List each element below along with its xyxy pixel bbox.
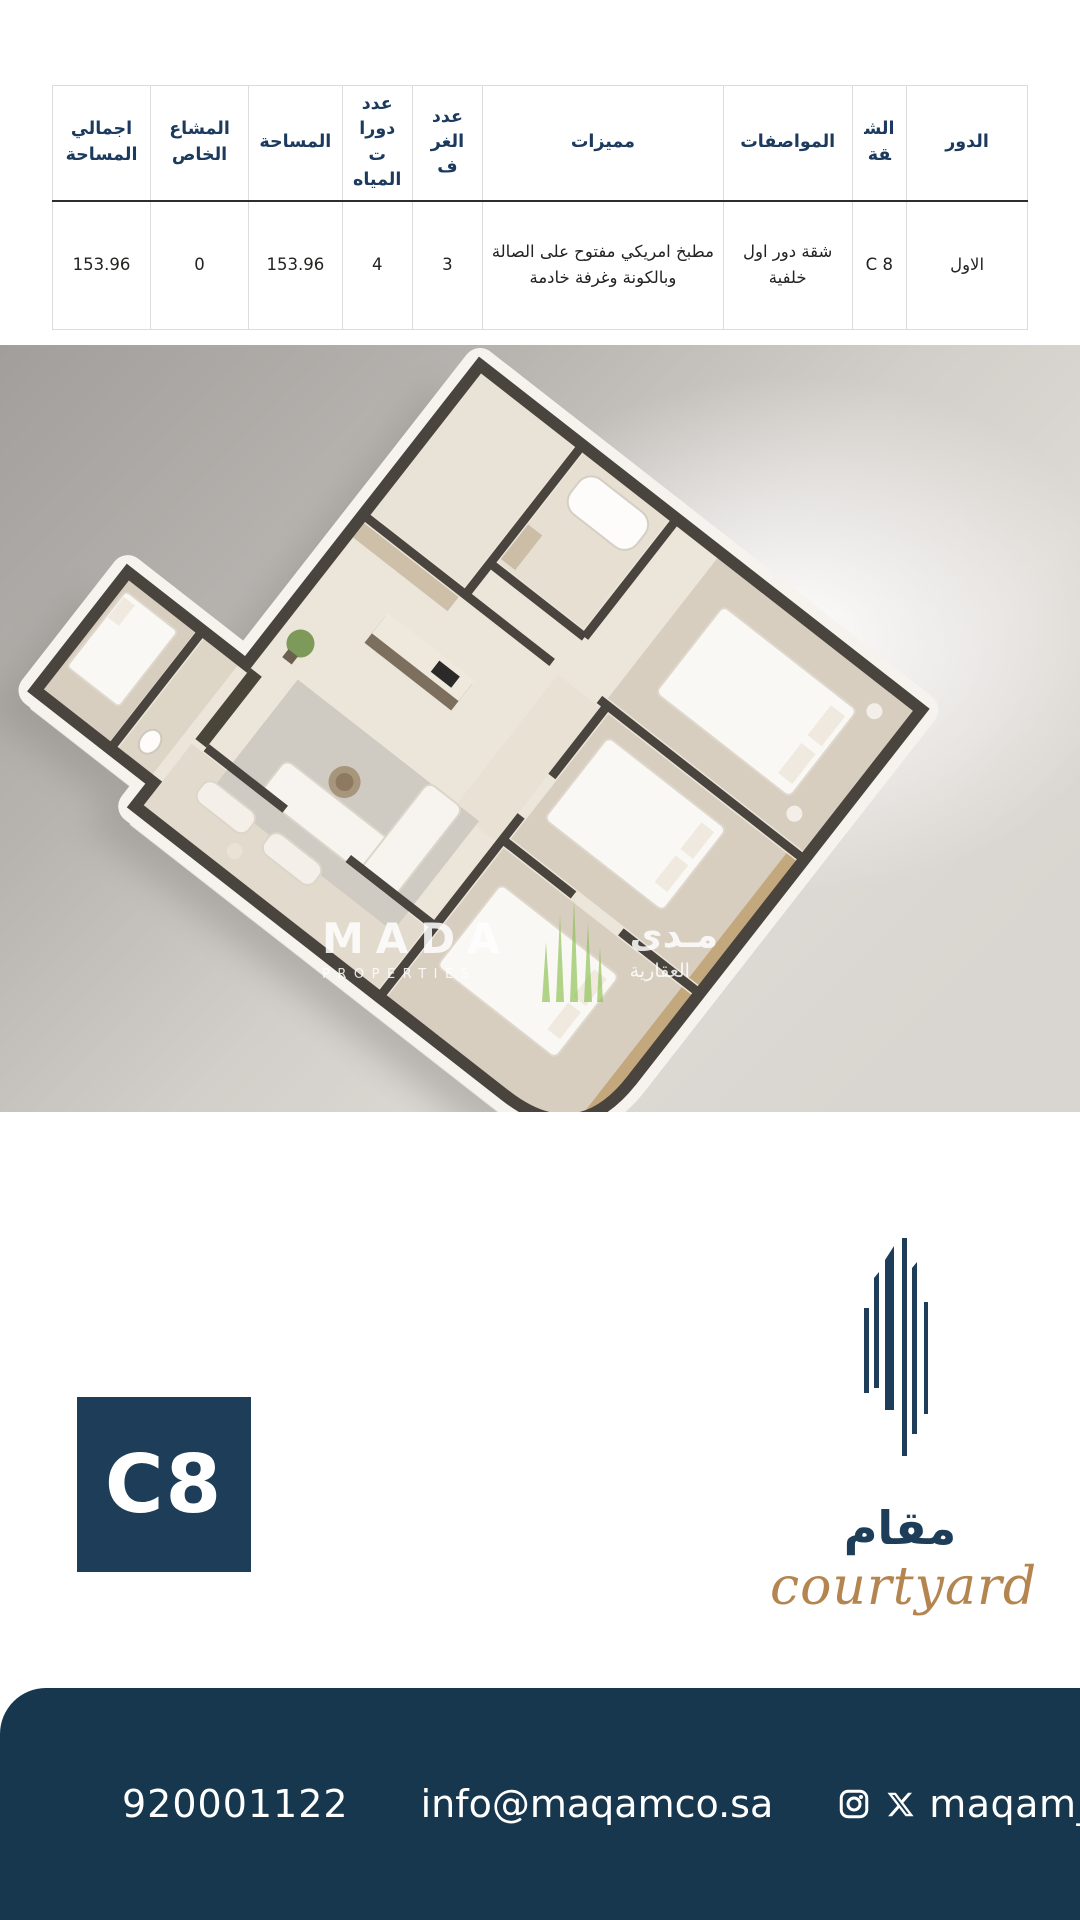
cell-bathrooms: 4 bbox=[342, 201, 412, 330]
col-floor: الدور bbox=[907, 86, 1028, 201]
footer-email[interactable]: info@maqamco.sa bbox=[421, 1782, 774, 1826]
col-apartment: الشقة bbox=[852, 86, 907, 201]
cell-private-common: 0 bbox=[151, 201, 249, 330]
mada-arabic-text: مـدى bbox=[630, 918, 718, 954]
footer-contact-row: 920001122 info@maqamco.sa maqam_co bbox=[0, 1782, 1080, 1826]
maqam-logo-icon bbox=[864, 1238, 936, 1483]
footer-social-icons bbox=[839, 1789, 915, 1819]
cell-features: مطبخ امريكي مفتوح على الصالة وبالكونة وغ… bbox=[483, 201, 724, 330]
floorplan-render: MADA PROPERTIES مـدى العقارية bbox=[0, 345, 1080, 1112]
cell-floor: الاول bbox=[907, 201, 1028, 330]
instagram-icon[interactable] bbox=[839, 1789, 869, 1819]
mada-wordmark: MADA PROPERTIES bbox=[322, 918, 512, 981]
brand-tagline: courtyard bbox=[770, 1561, 1030, 1613]
col-rooms: عدد الغرف bbox=[412, 86, 482, 201]
mada-arabic-wordmark: مـدى العقارية bbox=[630, 918, 718, 981]
footer: 920001122 info@maqamco.sa maqam_co bbox=[0, 1688, 1080, 1920]
mada-arabic-subtext: العقارية bbox=[630, 962, 718, 981]
unit-spec-table: الدور الشقة المواصفات مميزات عدد الغرف ع… bbox=[52, 85, 1028, 330]
cell-rooms: 3 bbox=[412, 201, 482, 330]
footer-social-handle[interactable]: maqam_co bbox=[929, 1782, 1080, 1826]
col-features: مميزات bbox=[483, 86, 724, 201]
col-specs: المواصفات bbox=[723, 86, 852, 201]
cell-apartment: C 8 bbox=[852, 201, 907, 330]
unit-badge: C8 bbox=[77, 1397, 251, 1572]
col-bathrooms: عدد دورات المياه bbox=[342, 86, 412, 201]
mada-brand-text: MADA bbox=[322, 918, 512, 960]
unit-badge-label: C8 bbox=[105, 1438, 223, 1531]
x-twitter-icon[interactable] bbox=[886, 1790, 915, 1819]
mada-brand-subtext: PROPERTIES bbox=[322, 968, 512, 981]
cell-total-area: 153.96 bbox=[53, 201, 151, 330]
table-row: الاول C 8 شقة دور اول خلفية مطبخ امريكي … bbox=[53, 201, 1028, 330]
col-total-area: اجمالي المساحة bbox=[53, 86, 151, 201]
brochure-page: الدور الشقة المواصفات مميزات عدد الغرف ع… bbox=[0, 0, 1080, 1920]
brand-name-arabic: مقام bbox=[770, 1505, 1030, 1551]
col-area: المساحة bbox=[249, 86, 343, 201]
maqam-brand-block: مقام courtyard bbox=[770, 1238, 1030, 1613]
mada-watermark: MADA PROPERTIES مـدى العقارية bbox=[322, 897, 718, 1002]
cell-specs: شقة دور اول خلفية bbox=[723, 201, 852, 330]
table-header-row: الدور الشقة المواصفات مميزات عدد الغرف ع… bbox=[53, 86, 1028, 201]
footer-phone[interactable]: 920001122 bbox=[122, 1782, 349, 1826]
col-private-common: المشاع الخاص bbox=[151, 86, 249, 201]
cell-area: 153.96 bbox=[249, 201, 343, 330]
mada-trees-icon bbox=[536, 897, 606, 1002]
